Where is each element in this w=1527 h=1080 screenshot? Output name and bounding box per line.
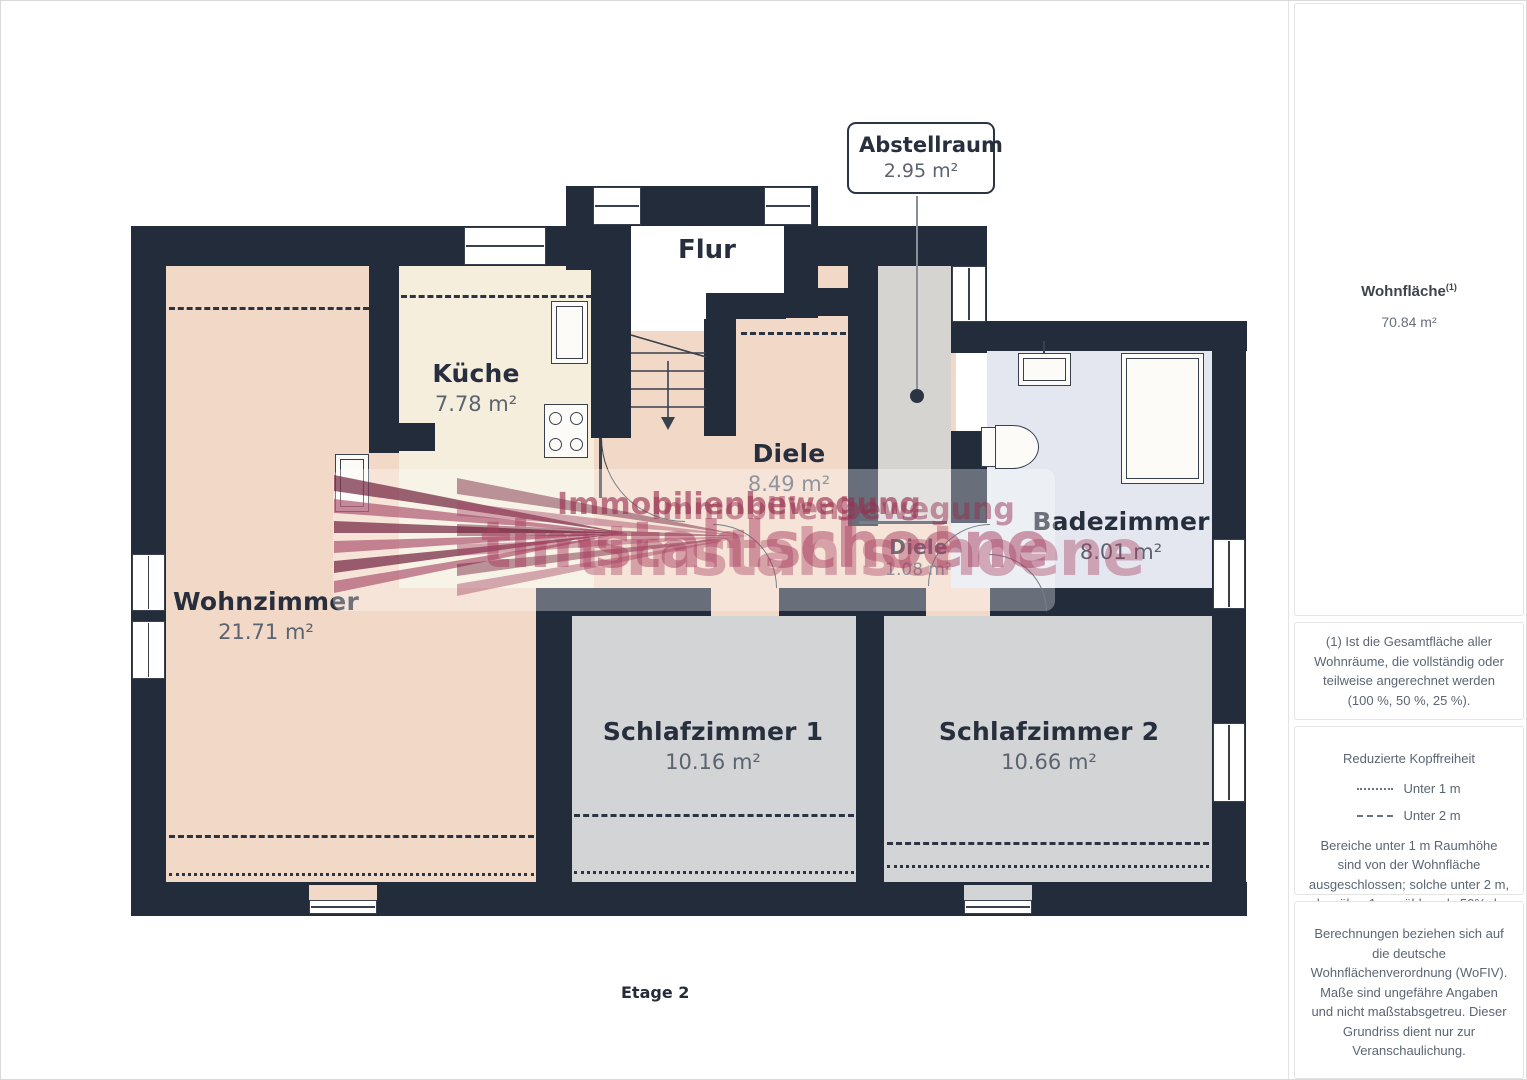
- room-label-schlafzimmer1: Schlafzimmer 1 10.16 m²: [563, 717, 863, 774]
- info-sidebar: Wohnfläche(1) 70.84 m² (1) Ist die Gesam…: [1288, 1, 1527, 1080]
- wall: [784, 288, 848, 316]
- room-label-diele-klein: Diele 1.08 m²: [846, 535, 991, 580]
- bathtub-basin: [1126, 358, 1199, 479]
- wall: [706, 293, 786, 319]
- floorplan-page: Flur Küche 7.78 m² Wohnzimmer 21.71 m² D…: [0, 0, 1527, 1080]
- room-label-wohnzimmer: Wohnzimmer 21.71 m²: [116, 587, 416, 644]
- stairs-down-arrow: [661, 417, 675, 430]
- headroom-1m-line: [574, 871, 854, 874]
- room-name: Schlafzimmer 1: [563, 717, 863, 746]
- bathtub: [1121, 353, 1204, 484]
- level-label: Etage 2: [621, 983, 689, 1002]
- bathroom-sink-tap: [1043, 341, 1045, 353]
- wall: [1212, 321, 1246, 916]
- window-recess: [964, 885, 1032, 901]
- dotted-line-sample: [1357, 788, 1393, 790]
- room-name: Diele: [846, 535, 991, 559]
- callout-title: Abstellraum: [859, 133, 983, 157]
- callout-area: 2.95 m²: [859, 160, 983, 182]
- wall: [131, 882, 1247, 916]
- room-area: 8.49 m²: [689, 472, 889, 496]
- door-leaf: [859, 521, 947, 524]
- room-area: 1.08 m²: [846, 560, 991, 580]
- armchair: [335, 454, 369, 512]
- room-area: 21.71 m²: [116, 620, 416, 644]
- wall: [784, 226, 961, 266]
- callout-line: [916, 196, 918, 392]
- window: [952, 266, 986, 322]
- headroom-title: Reduzierte Kopffreiheit: [1307, 749, 1511, 769]
- window: [764, 187, 812, 225]
- footnote-panel: (1) Ist die Gesamtfläche aller Wohnräume…: [1294, 622, 1524, 720]
- stairs: [631, 331, 706, 431]
- headroom-2m-line: [169, 835, 534, 838]
- window: [1213, 723, 1245, 802]
- storage-callout: Abstellraum 2.95 m²: [847, 122, 995, 194]
- disclaimer-panel: Berechnungen beziehen sich auf die deuts…: [1294, 901, 1524, 1079]
- bathroom-sink: [1018, 353, 1071, 386]
- door-opening: [926, 588, 990, 616]
- room-name: Wohnzimmer: [116, 587, 416, 616]
- kitchen-sink-basin: [556, 306, 583, 359]
- wall: [951, 321, 1247, 351]
- door-leaf: [599, 438, 602, 498]
- wall: [591, 226, 631, 438]
- legend-under-1m: Unter 1 m: [1307, 781, 1511, 796]
- wall: [536, 588, 884, 616]
- total-area-footnote-ref: (1): [1446, 282, 1457, 292]
- window: [309, 900, 377, 914]
- wall: [704, 319, 736, 436]
- room-area: 10.66 m²: [899, 750, 1199, 774]
- headroom-1m-line: [169, 873, 534, 876]
- headroom-2m-line: [741, 332, 846, 335]
- callout-dot: [910, 389, 924, 403]
- headroom-panel: Reduzierte Kopffreiheit Unter 1 m Unter …: [1294, 726, 1524, 895]
- room-name: Schlafzimmer 2: [899, 717, 1199, 746]
- window: [593, 187, 641, 225]
- headroom-2m-line: [169, 307, 369, 310]
- legend-label: Unter 2 m: [1403, 808, 1460, 823]
- room-label-diele: Diele 8.49 m²: [689, 439, 889, 496]
- dashed-line-sample: [1357, 815, 1393, 817]
- total-area-value: 70.84 m²: [1295, 314, 1523, 330]
- room-area: 10.16 m²: [563, 750, 863, 774]
- armchair-cushion: [340, 459, 364, 507]
- legend-label: Unter 1 m: [1403, 781, 1460, 796]
- room-label-flur: Flur: [632, 235, 782, 265]
- headroom-2m-line: [401, 295, 592, 298]
- window: [464, 227, 546, 265]
- stairs-graphic: [631, 331, 706, 431]
- window: [964, 900, 1032, 914]
- room-name: Badezimmer: [1021, 507, 1221, 536]
- room-name: Küche: [376, 359, 576, 388]
- headroom-2m-line: [887, 842, 1209, 845]
- total-area-label: Wohnfläche(1): [1295, 282, 1523, 300]
- total-area-panel: Wohnfläche(1) 70.84 m²: [1294, 3, 1524, 616]
- room-name: Diele: [689, 439, 889, 468]
- room-label-badezimmer: Badezimmer 8.01 m²: [1021, 507, 1221, 564]
- room-label-kueche: Küche 7.78 m²: [376, 359, 576, 416]
- footnote-text: (1) Ist die Gesamtfläche aller Wohnräume…: [1311, 632, 1507, 710]
- room-area: 8.01 m²: [1021, 540, 1221, 564]
- legend-under-2m: Unter 2 m: [1307, 808, 1511, 823]
- disclaimer-text: Berechnungen beziehen sich auf die deuts…: [1308, 924, 1510, 1061]
- wall: [369, 423, 435, 451]
- headroom-1m-line: [887, 865, 1209, 868]
- room-label-schlafzimmer2: Schlafzimmer 2 10.66 m²: [899, 717, 1199, 774]
- window-recess: [309, 885, 377, 901]
- headroom-2m-line: [574, 814, 854, 817]
- room-name: Flur: [632, 235, 782, 265]
- bathroom-sink-basin: [1023, 358, 1066, 381]
- kitchen-sink: [551, 301, 588, 364]
- room-area: 7.78 m²: [376, 392, 576, 416]
- door-opening: [711, 588, 779, 616]
- total-area-label-text: Wohnfläche: [1361, 283, 1446, 300]
